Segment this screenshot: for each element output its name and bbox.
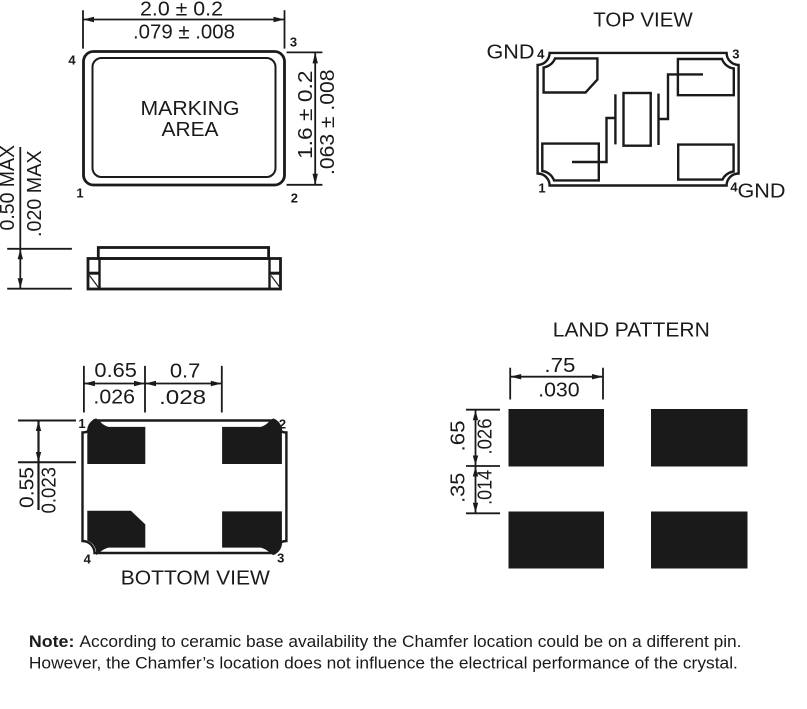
svg-text:2: 2 xyxy=(279,417,286,432)
svg-text:GND: GND xyxy=(738,180,786,203)
svg-text:1: 1 xyxy=(76,186,83,201)
svg-text:However, the Chamfer’s locatio: However, the Chamfer’s location does not… xyxy=(29,654,738,673)
svg-text:.35: .35 xyxy=(447,473,470,503)
svg-text:.079 ± .008: .079 ± .008 xyxy=(133,20,235,43)
svg-text:.026: .026 xyxy=(474,419,497,455)
svg-text:0.7: 0.7 xyxy=(170,360,201,383)
svg-text:.030: .030 xyxy=(538,379,580,402)
svg-text:1.6 ± 0.2: 1.6 ± 0.2 xyxy=(294,71,317,160)
svg-text:.65: .65 xyxy=(447,421,470,452)
svg-text:0.023: 0.023 xyxy=(38,467,61,514)
svg-text:3: 3 xyxy=(732,46,739,61)
svg-text:GND: GND xyxy=(487,41,535,64)
svg-text:According to ceramic base avai: According to ceramic base availability t… xyxy=(80,632,742,651)
svg-text:.020 MAX: .020 MAX xyxy=(23,150,46,237)
svg-text:3: 3 xyxy=(290,35,297,50)
svg-text:4: 4 xyxy=(84,552,92,567)
svg-text:1: 1 xyxy=(538,181,545,196)
svg-text:0.55: 0.55 xyxy=(16,467,39,508)
svg-text:.014: .014 xyxy=(474,470,497,505)
svg-text:MARKING: MARKING xyxy=(141,97,240,120)
svg-text:AREA: AREA xyxy=(162,118,219,141)
svg-text:.026: .026 xyxy=(93,386,135,409)
svg-text:.063 ± .008: .063 ± .008 xyxy=(316,69,339,175)
svg-text:.75: .75 xyxy=(544,354,575,377)
svg-text:TOP VIEW: TOP VIEW xyxy=(593,9,693,32)
svg-text:LAND PATTERN: LAND PATTERN xyxy=(553,318,710,341)
svg-text:0.65: 0.65 xyxy=(94,359,137,382)
svg-text:1: 1 xyxy=(78,416,85,431)
svg-text:0.50 MAX: 0.50 MAX xyxy=(0,145,19,231)
svg-text:4: 4 xyxy=(537,46,545,61)
svg-text:BOTTOM VIEW: BOTTOM VIEW xyxy=(121,567,271,590)
svg-text:.028: .028 xyxy=(159,386,206,409)
svg-text:2.0 ± 0.2: 2.0 ± 0.2 xyxy=(140,0,223,21)
svg-text:2: 2 xyxy=(291,191,298,206)
svg-text:3: 3 xyxy=(277,551,284,566)
svg-text:Note:: Note: xyxy=(29,632,74,651)
svg-text:4: 4 xyxy=(68,53,76,68)
